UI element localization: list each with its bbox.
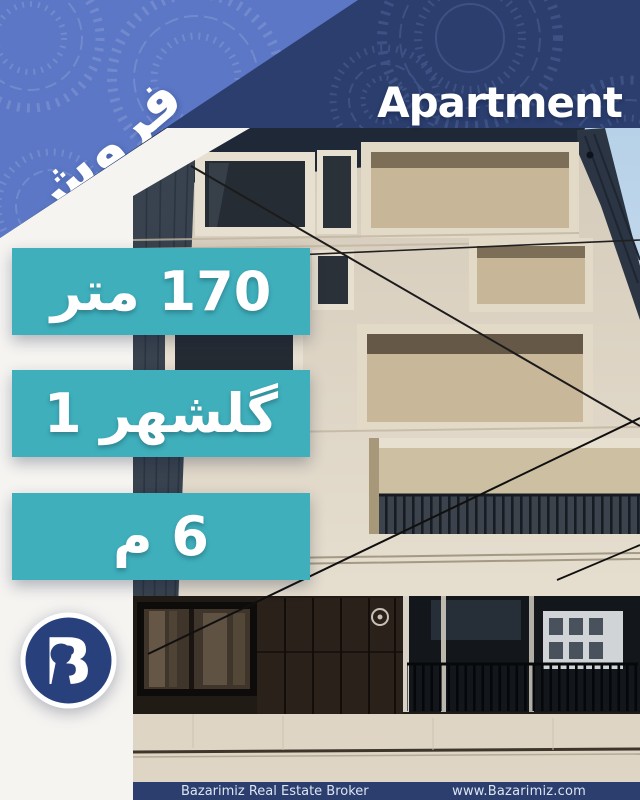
- badge-location: گلشهر 1: [12, 370, 310, 457]
- badge-price: 6 م: [12, 493, 310, 580]
- brand-logo: B: [20, 612, 117, 709]
- keyhole-b-logo-icon: B: [20, 612, 117, 709]
- page-title: Apartment: [362, 78, 622, 127]
- footer-bar: Bazarimiz Real Estate Broker www.Bazarim…: [133, 782, 640, 800]
- badge-area: 170 متر: [12, 248, 310, 335]
- broker-name: Bazarimiz Real Estate Broker: [181, 784, 369, 799]
- website-link[interactable]: www.Bazarimiz.com: [452, 784, 586, 799]
- poster-canvas: فروش Apartment 170 متر گلشهر 1 6 م B Baz…: [0, 0, 640, 800]
- svg-text:B: B: [44, 626, 93, 700]
